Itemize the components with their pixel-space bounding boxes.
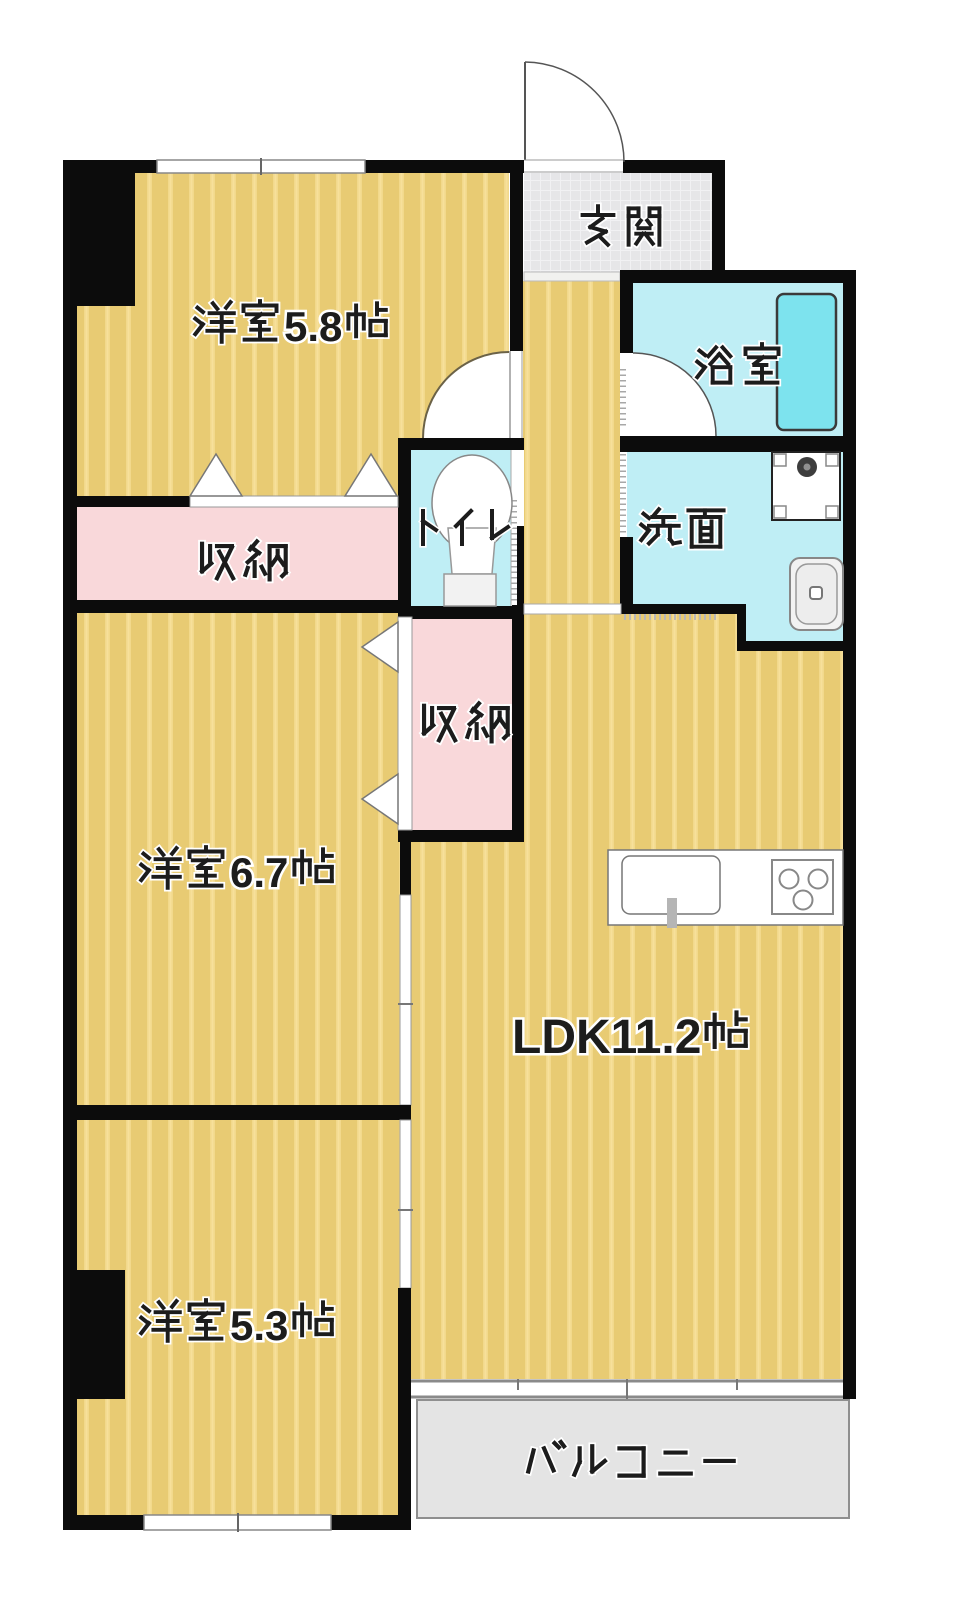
svg-text:5.8: 5.8 — [284, 303, 342, 350]
svg-text:LDK11.2: LDK11.2 — [512, 1011, 701, 1064]
svg-text:6.7: 6.7 — [230, 849, 288, 896]
svg-text:5.3: 5.3 — [230, 1302, 288, 1349]
